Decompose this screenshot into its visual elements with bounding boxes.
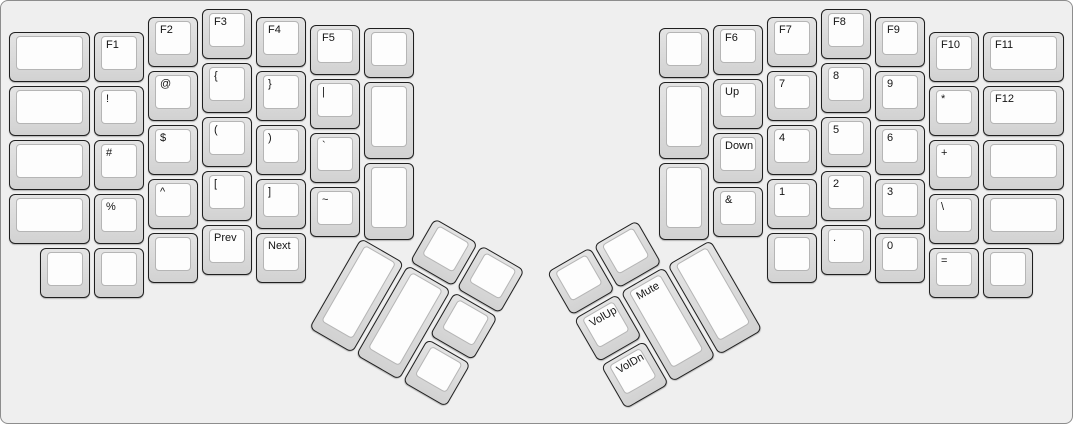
key-dollar[interactable]: $ (148, 125, 198, 175)
keycap-face (469, 252, 517, 299)
key-f7[interactable]: F7 (767, 17, 817, 67)
keycap-label: { (214, 69, 218, 83)
key-blank[interactable] (659, 163, 709, 240)
key-at[interactable]: @ (148, 71, 198, 121)
keycap-face: ( (209, 121, 245, 155)
key-blank[interactable] (9, 86, 90, 136)
keycap-label: F2 (160, 23, 173, 37)
keycap-face: \ (936, 198, 972, 232)
keycap-face: 4 (774, 129, 810, 163)
key-blank[interactable] (364, 82, 414, 159)
key-blank[interactable] (983, 248, 1033, 298)
keycap-face: [ (209, 175, 245, 209)
key-blank[interactable] (40, 248, 90, 298)
keycap-face (442, 299, 490, 346)
keycap-label: ] (268, 185, 271, 199)
key-paren-open[interactable]: ( (202, 117, 252, 167)
key-blank[interactable] (9, 194, 90, 244)
keycap-face: F3 (209, 13, 245, 47)
keycap-label: 4 (779, 131, 785, 145)
key-blank[interactable] (364, 28, 414, 78)
keycap-face (666, 86, 702, 147)
key-blank[interactable] (9, 140, 90, 190)
keycap-face: ! (101, 90, 137, 124)
key-blank[interactable] (148, 233, 198, 283)
keycap-face: ~ (317, 191, 353, 225)
key-paren-close[interactable]: ) (256, 125, 306, 175)
key-blank[interactable] (364, 163, 414, 240)
keycap-label: [ (214, 177, 217, 191)
keycap-label: F8 (833, 15, 846, 29)
keycap-label: | (322, 85, 325, 99)
keycap-face: VolUp (582, 301, 630, 348)
keycap-label: * (941, 92, 945, 106)
keycap-face: 5 (828, 121, 864, 155)
keycap-face: 0 (882, 237, 918, 271)
key-4[interactable]: 4 (767, 125, 817, 175)
key-blank[interactable] (9, 32, 90, 82)
keycap-face: . (828, 229, 864, 263)
keycap-label: F7 (779, 23, 792, 37)
keycap-face: F12 (990, 90, 1057, 124)
keycap-label: } (268, 77, 272, 91)
key-hash[interactable]: # (94, 140, 144, 190)
key-f12[interactable]: F12 (983, 86, 1064, 136)
keycap-face (47, 252, 83, 286)
key-bracket-open[interactable]: [ (202, 171, 252, 221)
key-backtick[interactable]: ` (310, 133, 360, 183)
keycap-label: Next (268, 239, 291, 253)
keycap-face: VolDn (609, 348, 657, 395)
key-f9[interactable]: F9 (875, 17, 925, 67)
keycap-label: 2 (833, 177, 839, 191)
keycap-label: VolDn (614, 350, 646, 377)
keyboard: F1!#%F2@$^F3{([F4})]F5|`~F6UpDown&F7741F… (0, 0, 1073, 424)
keycap-face: ^ (155, 183, 191, 217)
keycap-face (990, 144, 1057, 178)
keycap-face: } (263, 75, 299, 109)
keycap-label: 5 (833, 123, 839, 137)
keycap-label: Mute (634, 279, 662, 303)
keycap-face: + (936, 144, 972, 178)
keycap-label: F1 (106, 38, 119, 52)
keycap-label: 9 (887, 77, 893, 91)
keycap-face: { (209, 67, 245, 101)
keycap-label: 0 (887, 239, 893, 253)
keycap-face (990, 252, 1026, 286)
keycap-label: Prev (214, 231, 237, 245)
keycap-face: 6 (882, 129, 918, 163)
keycap-label: & (725, 193, 732, 207)
keycap-face: F5 (317, 29, 353, 63)
keycap-face: 7 (774, 75, 810, 109)
key-f2[interactable]: F2 (148, 17, 198, 67)
key-tilde[interactable]: ~ (310, 187, 360, 237)
key-ampersand[interactable]: & (713, 187, 763, 237)
keycap-face: | (317, 83, 353, 117)
key-percent[interactable]: % (94, 194, 144, 244)
keycap-label: + (941, 146, 947, 160)
keycap-face (555, 254, 603, 301)
keycap-face: F8 (828, 13, 864, 47)
key-f3[interactable]: F3 (202, 9, 252, 59)
key-f1[interactable]: F1 (94, 32, 144, 82)
key-blank[interactable] (94, 248, 144, 298)
keycap-face: 9 (882, 75, 918, 109)
key-bracket-close[interactable]: ] (256, 179, 306, 229)
key-blank[interactable] (767, 233, 817, 283)
keycap-face (101, 252, 137, 286)
keycap-label: ` (322, 139, 326, 153)
keycap-label: F12 (995, 92, 1014, 106)
keycap-face: 1 (774, 183, 810, 217)
keycap-face (990, 198, 1057, 232)
keycap-face: $ (155, 129, 191, 163)
keycap-label: Up (725, 85, 739, 99)
keycap-label: F9 (887, 23, 900, 37)
key-prev[interactable]: Prev (202, 225, 252, 275)
keycap-face (16, 198, 83, 232)
key-blank[interactable] (983, 140, 1064, 190)
key-pipe[interactable]: | (310, 79, 360, 129)
keycap-face: Next (263, 237, 299, 271)
key-f11[interactable]: F11 (983, 32, 1064, 82)
keycap-face: F1 (101, 36, 137, 70)
key-5[interactable]: 5 (821, 117, 871, 167)
key-asterisk[interactable]: * (929, 86, 979, 136)
key-f8[interactable]: F8 (821, 9, 871, 59)
key-next[interactable]: Next (256, 233, 306, 283)
keycap-label: 7 (779, 77, 785, 91)
keycap-label: 3 (887, 185, 893, 199)
keycap-face: 3 (882, 183, 918, 217)
keycap-face (16, 36, 83, 70)
keycap-face (774, 237, 810, 271)
keycap-face: F4 (263, 21, 299, 55)
keycap-face: # (101, 144, 137, 178)
keycap-face: & (720, 191, 756, 225)
keycap-face: F6 (720, 29, 756, 63)
keycap-face: ) (263, 129, 299, 163)
key-backslash[interactable]: \ (929, 194, 979, 244)
key-blank[interactable]: + (929, 140, 979, 190)
keycap-face: ] (263, 183, 299, 217)
key-f4[interactable]: F4 (256, 17, 306, 67)
key-blank[interactable] (659, 82, 709, 159)
keycap-label: F3 (214, 15, 227, 29)
keycap-face: Down (720, 137, 756, 171)
keycap-label: 8 (833, 69, 839, 83)
keycap-label: # (106, 146, 112, 160)
key-f6[interactable]: F6 (713, 25, 763, 75)
keycap-label: = (941, 254, 947, 268)
key-6[interactable]: 6 (875, 125, 925, 175)
key-3[interactable]: 3 (875, 179, 925, 229)
keycap-face: F11 (990, 36, 1057, 70)
keycap-face: = (936, 252, 972, 286)
keycap-face (371, 32, 407, 66)
keycap-label: $ (160, 131, 166, 145)
keycap-label: ~ (322, 193, 328, 207)
keycap-label: % (106, 200, 116, 214)
keycap-label: F11 (995, 38, 1013, 52)
key-1[interactable]: 1 (767, 179, 817, 229)
keycap-face (155, 237, 191, 271)
keycap-face: Prev (209, 229, 245, 263)
keycap-label: Down (725, 139, 753, 153)
keycap-label: 1 (779, 185, 785, 199)
keycap-face (666, 32, 702, 66)
keycap-face (422, 225, 470, 272)
keycap-face: F9 (882, 21, 918, 55)
keycap-face: * (936, 90, 972, 124)
keycap-label: 6 (887, 131, 893, 145)
key-down[interactable]: Down (713, 133, 763, 183)
key-9[interactable]: 9 (875, 71, 925, 121)
key-0[interactable]: 0 (875, 233, 925, 283)
keycap-face (16, 144, 83, 178)
keycap-face: Up (720, 83, 756, 117)
keycap-face: ` (317, 137, 353, 171)
keycap-face: @ (155, 75, 191, 109)
key-period[interactable]: . (821, 225, 871, 275)
keycap-label: @ (160, 77, 171, 91)
keycap-label: VolUp (587, 304, 619, 331)
keycap-face (371, 167, 407, 228)
key-7[interactable]: 7 (767, 71, 817, 121)
keycap-face: 8 (828, 67, 864, 101)
keycap-label: F4 (268, 23, 281, 37)
keycap-label: ) (268, 131, 272, 145)
key-equals[interactable]: = (929, 248, 979, 298)
key-f10[interactable]: F10 (929, 32, 979, 82)
key-up[interactable]: Up (713, 79, 763, 129)
keycap-label: . (833, 231, 836, 245)
keycap-label: F5 (322, 31, 335, 45)
key-brace-open[interactable]: { (202, 63, 252, 113)
keycap-face (666, 167, 702, 228)
keycap-face: F2 (155, 21, 191, 55)
key-2[interactable]: 2 (821, 171, 871, 221)
keycap-label: ( (214, 123, 218, 137)
key-exclamation[interactable]: ! (94, 86, 144, 136)
keycap-face: F10 (936, 36, 972, 70)
keycap-label: F6 (725, 31, 738, 45)
keycap-label: \ (941, 200, 944, 214)
key-blank[interactable] (659, 28, 709, 78)
keycap-face (602, 227, 650, 274)
keycap-label: ! (106, 92, 109, 106)
keycap-face (16, 90, 83, 124)
keycap-face: 2 (828, 175, 864, 209)
keycap-face (371, 86, 407, 147)
keycap-face: % (101, 198, 137, 232)
key-8[interactable]: 8 (821, 63, 871, 113)
keycap-face: F7 (774, 21, 810, 55)
keycap-face (415, 346, 463, 393)
key-brace-close[interactable]: } (256, 71, 306, 121)
key-blank[interactable] (983, 194, 1064, 244)
keycap-label: ^ (160, 185, 165, 199)
keycap-label: F10 (941, 38, 960, 52)
key-f5[interactable]: F5 (310, 25, 360, 75)
key-caret[interactable]: ^ (148, 179, 198, 229)
